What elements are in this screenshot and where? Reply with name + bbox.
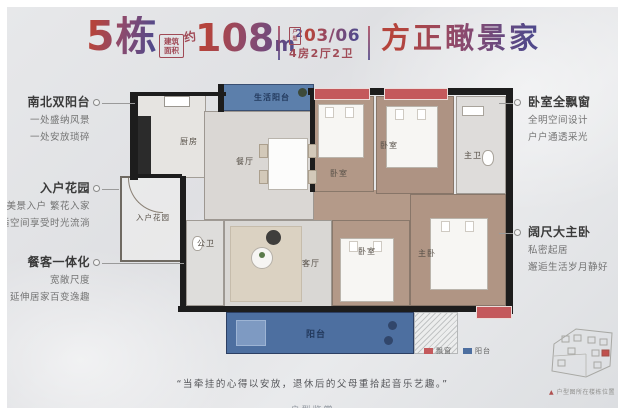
- annotation-text: 舒适空间享受时光流淌: [0, 216, 90, 233]
- room-label-balcony: 阳台: [306, 327, 326, 340]
- marketing-quote: “当牵挂的心得以安放，退休后的父母重拾起音乐艺趣。”: [0, 376, 625, 390]
- plant-icon: [388, 321, 397, 330]
- area-value: 108m2: [195, 19, 303, 57]
- balcony-lounge: [236, 320, 266, 346]
- area-badge-line1: 建筑: [164, 37, 179, 46]
- site-plan-caption: ▲ 户型图所在楼栋位置: [544, 387, 620, 396]
- kitchen-appliance: [138, 116, 151, 174]
- legend-item-bay-window: 飘窗: [424, 346, 452, 356]
- annotation-text: 一处盛纳风景: [0, 113, 90, 130]
- area-badge: 建筑 面积: [159, 34, 184, 58]
- annotation-entry-garden: 入户花园 美景入户 繁花入家 舒适空间享受时光流淌: [0, 182, 90, 232]
- pillow: [417, 109, 426, 120]
- connector-line: [102, 263, 184, 264]
- wall-segment: [180, 176, 186, 310]
- dining-table: [268, 138, 308, 190]
- room-label-entry-garden: 入户花园: [136, 212, 170, 223]
- legend-swatch-red: [424, 348, 433, 354]
- bathroom-sink: [462, 106, 484, 116]
- pillow: [395, 109, 404, 120]
- pillow: [349, 241, 358, 252]
- annotation-bay-windows: 卧室全飘窗 全明空间设计 户户通透采光: [528, 96, 625, 146]
- annotation-title: 卧室全飘窗: [528, 96, 625, 109]
- wall-segment: [218, 84, 224, 112]
- connector-dot-icon: [93, 99, 100, 106]
- wall-segment: [130, 92, 138, 180]
- connector-line: [102, 189, 119, 190]
- room-label-kitchen: 厨房: [180, 136, 198, 147]
- unit-plan-icon: 户 型: [289, 27, 301, 45]
- legend-swatch-blue: [463, 348, 472, 354]
- unit-number-row: 户 型 03/06: [289, 26, 360, 46]
- unit-layout: 4房2厅2卫: [289, 45, 354, 61]
- legend-label: 飘窗: [436, 346, 452, 356]
- area-badge-line2: 面积: [164, 46, 179, 55]
- connector-dot-icon: [514, 229, 521, 236]
- bed: [386, 106, 438, 168]
- bed: [318, 104, 364, 158]
- frame-border: [0, 0, 7, 415]
- bay-window: [476, 306, 512, 319]
- floor-plan: 生活阳台 厨房 餐厅 入户花园 公卫 客厅 卧室 卧室 主卫 主卧 卧室 阳台: [118, 80, 516, 368]
- coffee-table: [251, 247, 273, 269]
- flyer-page: 5栋 建筑 面积 约 108m2 户 型 03/06 4房2厅2卫 方正瞰景家 …: [0, 0, 625, 415]
- room-label-master-bedroom: 主卧: [418, 248, 436, 259]
- annotation-text: 全明空间设计: [528, 113, 625, 130]
- room-label-dining: 餐厅: [236, 156, 254, 167]
- annotation-text: 宽敞尺度: [0, 273, 90, 290]
- bay-window: [384, 88, 448, 100]
- connector-dot-icon: [93, 259, 100, 266]
- legend-label: 阳台: [475, 346, 491, 356]
- annotation-dual-balcony: 南北双阳台 一处盛纳风景 一处安放琐碎: [0, 96, 90, 146]
- location-marker-icon: ▲: [549, 389, 554, 396]
- bed: [430, 218, 488, 290]
- dining-chair: [259, 144, 268, 158]
- wall-segment: [506, 88, 513, 314]
- frame-border: [0, 408, 625, 415]
- room-label-bedroom: 卧室: [358, 246, 376, 257]
- room-label-master-bath: 主卫: [464, 150, 482, 161]
- connector-dot-icon: [514, 99, 521, 106]
- header-divider: [368, 26, 370, 60]
- kitchen-sink: [164, 96, 190, 107]
- connector-line: [499, 233, 513, 234]
- room-label-service-balcony: 生活阳台: [254, 92, 290, 103]
- building-number: 5栋: [86, 16, 158, 57]
- site-plan-inset: ▲ 户型图所在楼栋位置: [544, 324, 620, 396]
- wall-segment: [178, 306, 508, 312]
- annotation-title: 阔尺大主卧: [528, 226, 625, 239]
- annotation-text: 延伸居家百变逸趣: [0, 290, 90, 307]
- unit-number: 03/06: [304, 26, 360, 46]
- connector-line: [499, 103, 513, 104]
- room-label-living: 客厅: [302, 258, 320, 269]
- plant-icon: [384, 336, 393, 345]
- hallway: [314, 190, 410, 220]
- frame-border: [618, 0, 625, 415]
- coffee-table: [266, 230, 281, 245]
- annotation-master-bedroom: 阔尺大主卧 私密起居 邂逅生活岁月静好: [528, 226, 625, 276]
- plant-icon: [298, 88, 307, 97]
- legend-item-balcony: 阳台: [463, 346, 491, 356]
- bay-window: [314, 88, 370, 100]
- site-plan-map: [544, 324, 620, 382]
- page-title: 方正瞰景家: [381, 23, 541, 55]
- pillow: [345, 107, 354, 118]
- room-label-bedroom: 卧室: [380, 140, 398, 151]
- pillow: [325, 107, 334, 118]
- legend: 飘窗 阳台: [424, 346, 491, 356]
- room-label-guest-bath: 公卫: [197, 238, 215, 249]
- room-label-bedroom: 卧室: [330, 168, 348, 179]
- room-guest-bath: [186, 220, 224, 306]
- header-divider: [278, 26, 280, 60]
- annotation-dining-living: 餐客一体化 宽敞尺度 延伸居家百变逸趣: [0, 256, 90, 306]
- connector-dot-icon: [93, 185, 100, 192]
- plant-icon: [259, 252, 265, 258]
- dining-chair: [259, 170, 268, 184]
- pillow: [441, 221, 450, 232]
- annotation-text: 邂逅生活岁月静好: [528, 260, 625, 277]
- toilet: [482, 150, 494, 166]
- dining-chair: [308, 170, 317, 184]
- pillow: [465, 221, 474, 232]
- connector-line: [102, 103, 135, 104]
- dining-chair: [308, 144, 317, 158]
- annotation-title: 南北双阳台: [0, 96, 90, 109]
- annotation-title: 餐客一体化: [0, 256, 90, 269]
- annotation-text: 一处安放琐碎: [0, 130, 90, 147]
- frame-border: [0, 0, 625, 7]
- annotation-text: 私密起居: [528, 243, 625, 260]
- annotation-text: 美景入户 繁花入家: [0, 199, 90, 216]
- annotation-text: 户户通透采光: [528, 130, 625, 147]
- annotation-title: 入户花园: [0, 182, 90, 195]
